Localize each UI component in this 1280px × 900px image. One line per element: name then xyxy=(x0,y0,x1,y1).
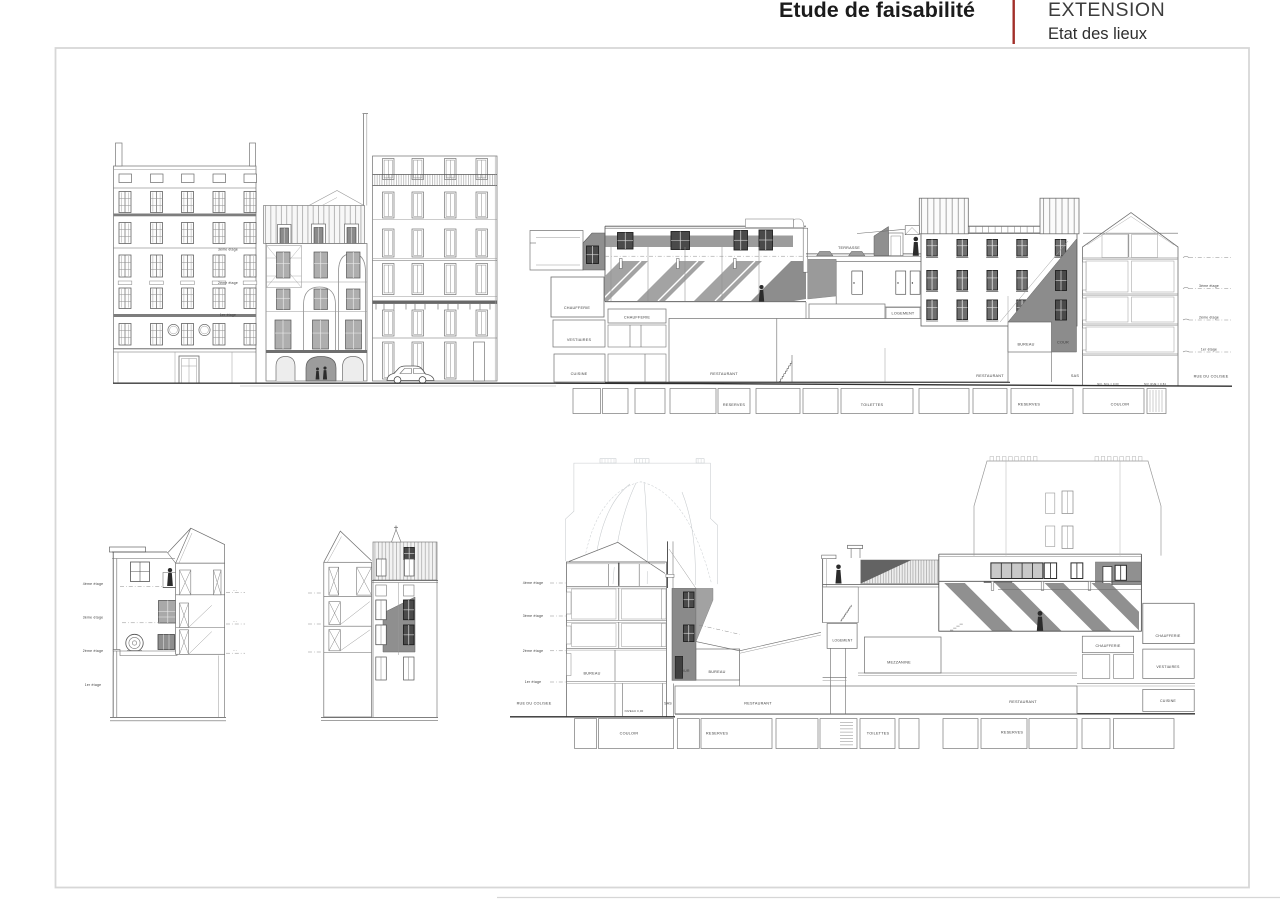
svg-text:LOGEMENT: LOGEMENT xyxy=(832,639,852,643)
svg-text:SAS: SAS xyxy=(1071,374,1079,378)
svg-text:MEZZANINE: MEZZANINE xyxy=(887,661,911,665)
svg-text:CHAUFFERIE: CHAUFFERIE xyxy=(1156,634,1181,638)
svg-text:RESTAURANT: RESTAURANT xyxy=(744,702,772,706)
svg-text:1er étage: 1er étage xyxy=(1201,348,1217,352)
svg-text:2ème étage: 2ème étage xyxy=(83,649,104,653)
svg-text:RESERVES: RESERVES xyxy=(1001,731,1023,735)
svg-text:···: ··· xyxy=(233,649,237,653)
svg-text:TOILETTES: TOILETTES xyxy=(861,403,884,407)
svg-text:VESTIAIRES: VESTIAIRES xyxy=(567,338,592,342)
svg-text:EXTENSION: EXTENSION xyxy=(1048,0,1165,21)
svg-text:3ème étage: 3ème étage xyxy=(523,614,544,618)
svg-text:COULOIR: COULOIR xyxy=(1111,403,1130,407)
svg-text:3ème étage: 3ème étage xyxy=(1199,284,1219,288)
svg-text:4ème étage: 4ème étage xyxy=(83,582,104,586)
svg-text:RESERVES: RESERVES xyxy=(706,732,728,736)
svg-text:COULOIR: COULOIR xyxy=(620,732,639,736)
svg-text:NIV. SOL = 0,00: NIV. SOL = 0,00 xyxy=(1097,382,1119,386)
svg-text:1er étage: 1er étage xyxy=(525,680,542,684)
svg-text:RESERVES: RESERVES xyxy=(723,403,745,407)
svg-text:TOILETTES: TOILETTES xyxy=(867,732,890,736)
svg-text:2ème étage: 2ème étage xyxy=(218,281,238,285)
svg-text:Etude de faisabilité: Etude de faisabilité xyxy=(779,0,975,22)
svg-text:CUISINE: CUISINE xyxy=(571,372,588,376)
svg-text:LOGEMENT: LOGEMENT xyxy=(892,312,915,316)
svg-text:RESTAURANT: RESTAURANT xyxy=(710,372,738,376)
svg-text:RESERVES: RESERVES xyxy=(1018,403,1040,407)
svg-text:3ème étage: 3ème étage xyxy=(218,248,238,252)
svg-text:RUE DU COLISEE: RUE DU COLISEE xyxy=(1194,375,1229,379)
svg-text:CUISINE: CUISINE xyxy=(1160,699,1176,703)
svg-text:···: ··· xyxy=(233,588,237,592)
svg-text:1er étage: 1er étage xyxy=(85,683,102,687)
svg-text:1er étage: 1er étage xyxy=(220,313,236,317)
svg-text:CHAUFFERIE: CHAUFFERIE xyxy=(564,306,591,310)
svg-text:4ème étage: 4ème étage xyxy=(523,581,544,585)
svg-text:RESTAURANT: RESTAURANT xyxy=(976,374,1004,378)
svg-text:CHAUFFERIE: CHAUFFERIE xyxy=(1096,644,1121,648)
svg-text:···: ··· xyxy=(233,620,237,624)
svg-text:COUR: COUR xyxy=(1057,341,1069,345)
svg-text:VESTIAIRES: VESTIAIRES xyxy=(1156,665,1180,669)
svg-text:NIVEAU 0,00: NIVEAU 0,00 xyxy=(625,709,644,713)
svg-text:Etat des lieux: Etat des lieux xyxy=(1048,25,1148,43)
svg-text:BUREAU: BUREAU xyxy=(583,672,600,676)
svg-text:CHAUFFERIE: CHAUFFERIE xyxy=(624,316,651,320)
svg-text:BUREAU: BUREAU xyxy=(1017,343,1034,347)
svg-text:2ème étage: 2ème étage xyxy=(523,649,544,653)
svg-text:RUE DU COLISEE: RUE DU COLISEE xyxy=(517,702,552,706)
svg-text:SAS: SAS xyxy=(664,702,672,706)
svg-text:TERRASSE: TERRASSE xyxy=(838,246,860,250)
svg-text:COUR: COUR xyxy=(678,669,690,673)
svg-text:NIV. RUE = 0,54: NIV. RUE = 0,54 xyxy=(1144,382,1166,386)
svg-text:RESTAURANT: RESTAURANT xyxy=(1009,700,1037,704)
svg-text:BUREAU: BUREAU xyxy=(708,670,725,674)
svg-text:3ème étage: 3ème étage xyxy=(83,616,104,620)
svg-text:2ème étage: 2ème étage xyxy=(1199,316,1219,320)
